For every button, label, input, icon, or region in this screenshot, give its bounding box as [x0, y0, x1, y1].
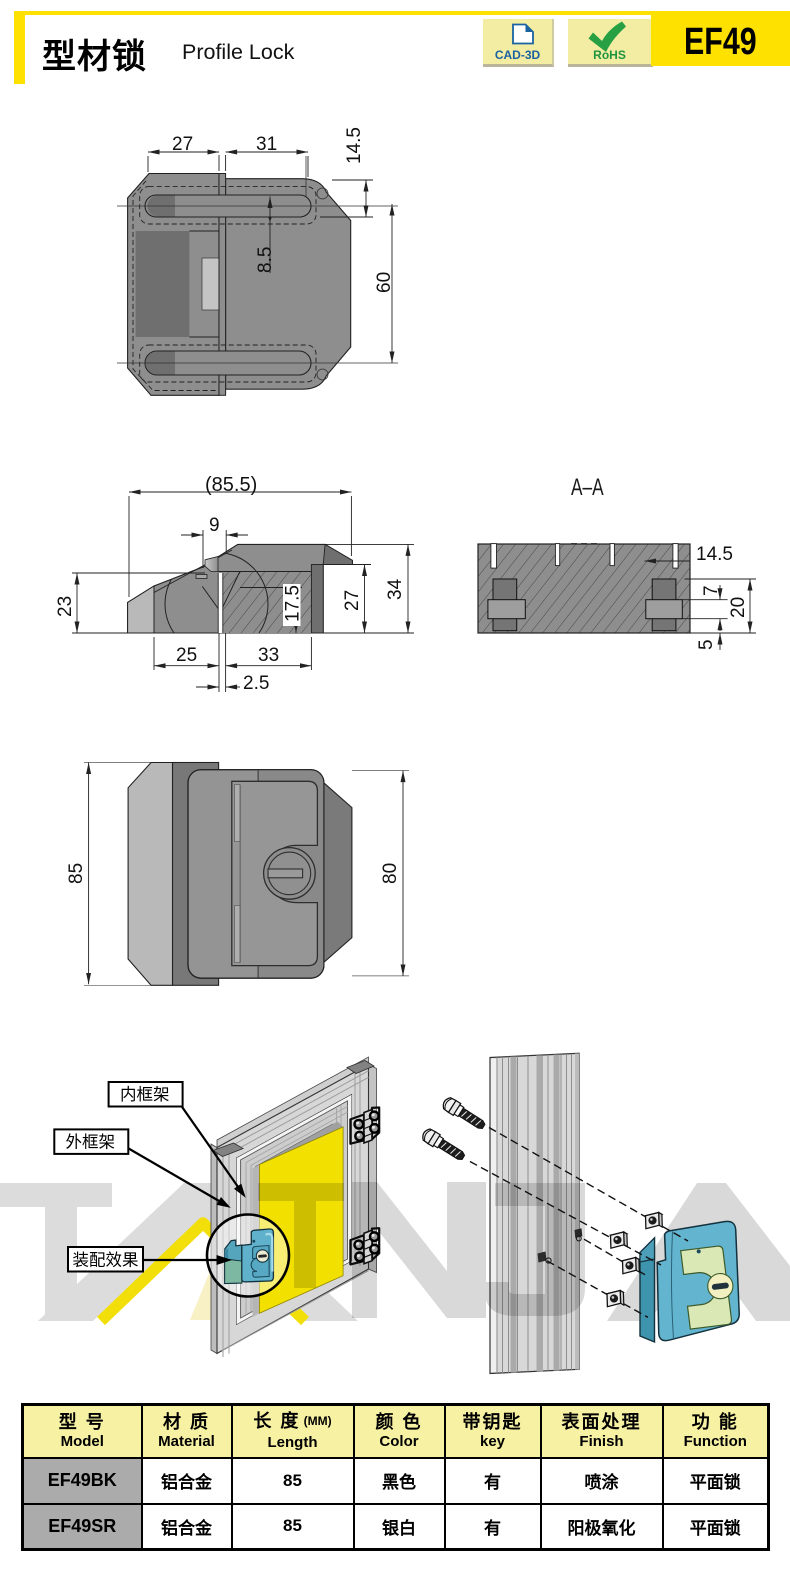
svg-text:14.5: 14.5 — [344, 127, 365, 164]
svg-text:33: 33 — [258, 645, 279, 666]
svg-text:34: 34 — [385, 578, 406, 600]
svg-text:(85.5): (85.5) — [205, 474, 257, 496]
svg-text:14.5: 14.5 — [696, 544, 733, 565]
svg-text:25: 25 — [176, 645, 197, 666]
svg-text:27: 27 — [342, 590, 363, 611]
svg-text:7: 7 — [701, 585, 722, 596]
svg-text:80: 80 — [380, 863, 401, 884]
svg-text:20: 20 — [728, 597, 749, 618]
svg-text:85: 85 — [66, 863, 87, 884]
svg-text:9: 9 — [209, 515, 220, 536]
svg-text:8.5: 8.5 — [255, 247, 276, 273]
svg-text:23: 23 — [55, 596, 76, 617]
svg-text:A–A: A–A — [571, 474, 604, 500]
svg-text:17.5: 17.5 — [283, 585, 304, 622]
svg-text:5: 5 — [696, 639, 717, 650]
svg-text:内框架: 内框架 — [120, 1085, 170, 1104]
svg-text:装配效果: 装配效果 — [73, 1250, 139, 1269]
svg-text:外框架: 外框架 — [66, 1133, 116, 1152]
svg-text:60: 60 — [374, 272, 395, 293]
svg-text:2.5: 2.5 — [243, 673, 269, 694]
svg-text:31: 31 — [256, 134, 277, 155]
svg-text:27: 27 — [172, 134, 193, 155]
